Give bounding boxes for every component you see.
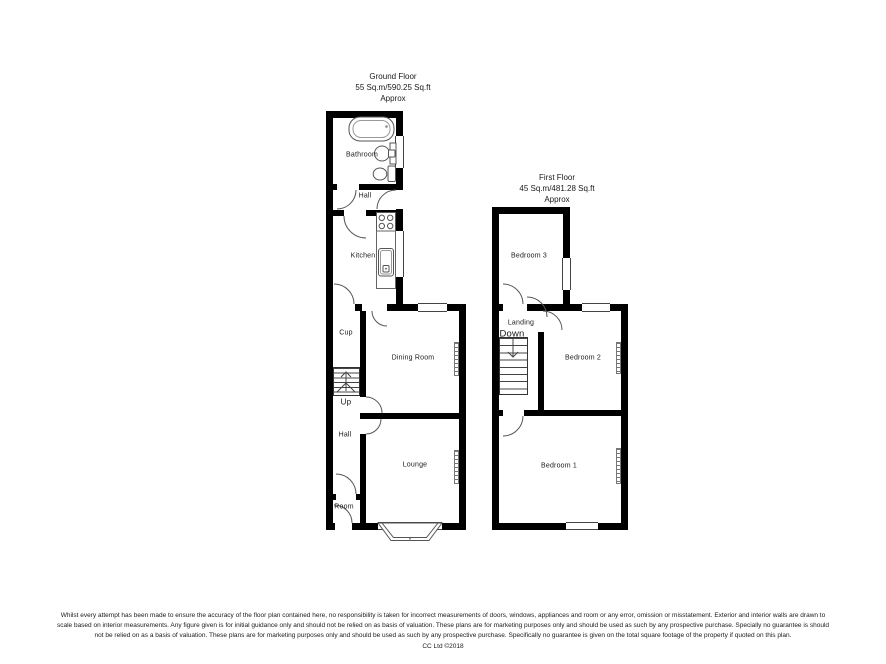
- wall-segment: [360, 311, 366, 397]
- door-arc-bedroom3: [503, 284, 523, 304]
- bathtub: [349, 117, 394, 141]
- wall-segment: [356, 494, 366, 500]
- wall-segment: [326, 523, 335, 530]
- radiator: [454, 342, 459, 376]
- wall-segment: [326, 111, 333, 530]
- wall-segment: [492, 304, 503, 311]
- wall-segment: [621, 304, 628, 530]
- door-arc-hall-lounge: [366, 419, 381, 434]
- wall-segment: [492, 410, 503, 416]
- wall-segment: [563, 207, 570, 258]
- disclaimer-line-2: scale based on interior measurements. An…: [0, 621, 886, 631]
- wall-segment: [359, 184, 403, 190]
- ground-floor-approx: Approx: [293, 93, 493, 104]
- window: [562, 258, 571, 290]
- wall-segment: [326, 494, 336, 500]
- staircase-first: [499, 337, 528, 395]
- stairs-label-up: Up: [341, 398, 352, 407]
- door-arc-bathroom: [337, 190, 356, 209]
- radiator: [616, 448, 621, 484]
- room-label-room: Room: [334, 504, 353, 511]
- toilet-cistern: [388, 166, 396, 182]
- door-arc-dining: [372, 311, 387, 326]
- wall-segment: [387, 304, 418, 311]
- disclaimer-line-1: Whilst every attempt has been made to en…: [0, 611, 886, 621]
- room-label-bedroom1: Bedroom 1: [541, 463, 577, 470]
- radiator: [454, 450, 459, 484]
- burner-icon: [379, 223, 384, 228]
- drain-icon: [385, 268, 387, 270]
- door-arc-bedroom1: [503, 416, 523, 436]
- room-label-hall-lower: Hall: [339, 432, 352, 439]
- ground-floor-title-block: Ground Floor 55 Sq.m/590.25 Sq.ft Approx: [293, 71, 493, 104]
- wall-segment: [360, 434, 366, 530]
- wall-segment: [492, 207, 499, 530]
- kitchen-counter: [377, 231, 396, 289]
- kitchen-sink-inner: [381, 251, 392, 275]
- floor-plan-page: Ground Floor 55 Sq.m/590.25 Sq.ft Approx…: [0, 0, 886, 664]
- bay-window-sill: [378, 522, 442, 530]
- bathtub-inner: [353, 121, 390, 138]
- wall-segment: [366, 210, 403, 216]
- wall-segment: [492, 207, 570, 214]
- first-floor-approx: Approx: [457, 194, 657, 205]
- kitchen-sink-basin: [383, 266, 389, 273]
- wall-segment: [538, 332, 544, 416]
- wall-segment: [492, 523, 566, 530]
- stairs-label-down: Down: [499, 329, 524, 340]
- toilet: [373, 168, 387, 180]
- room-label-hall-upper: Hall: [359, 193, 372, 200]
- wall-segment: [333, 210, 344, 216]
- burner-icon: [388, 223, 393, 228]
- disclaimer: Whilst every attempt has been made to en…: [0, 611, 886, 652]
- window: [418, 303, 447, 312]
- room-label-cup: Cup: [339, 330, 352, 337]
- wall-segment: [355, 304, 362, 311]
- first-floor-title: First Floor: [457, 172, 657, 183]
- wall-segment: [527, 304, 582, 311]
- staircase-ground: [333, 367, 360, 396]
- disclaimer-line-3: not be relied on as a basis of valuation…: [0, 631, 886, 641]
- door-arc-kitchen: [344, 216, 366, 238]
- kitchen-sink: [379, 249, 394, 277]
- door-arc-bedroom2: [543, 311, 562, 330]
- wall-segment: [598, 523, 628, 530]
- room-label-bedroom3: Bedroom 3: [511, 253, 547, 260]
- bath-tap-icon: [385, 125, 388, 128]
- first-floor-area: 45 Sq.m/481.28 Sq.ft: [457, 183, 657, 194]
- window: [395, 136, 404, 168]
- radiator: [616, 342, 621, 374]
- room-label-bathroom: Bathroom: [346, 152, 378, 159]
- door-arc-hall-dining: [366, 397, 382, 413]
- door-arc-room: [336, 474, 356, 494]
- window: [566, 522, 598, 530]
- room-label-kitchen: Kitchen: [351, 253, 376, 260]
- ground-floor-title: Ground Floor: [293, 71, 493, 82]
- wall-segment: [360, 413, 466, 419]
- wall-segment: [333, 184, 337, 190]
- room-label-dining-room: Dining Room: [392, 355, 435, 362]
- room-label-landing: Landing: [508, 320, 534, 327]
- door-arc-hall-side: [377, 190, 396, 209]
- window: [395, 231, 404, 277]
- room-label-bedroom2: Bedroom 2: [565, 355, 601, 362]
- wall-segment: [442, 523, 466, 530]
- bay-window-mark: [409, 538, 411, 540]
- room-label-lounge: Lounge: [403, 462, 428, 469]
- copyright: CC Ltd ©2018: [0, 642, 886, 652]
- wall-segment: [326, 111, 403, 118]
- window: [582, 303, 610, 312]
- first-floor-title-block: First Floor 45 Sq.m/481.28 Sq.ft Approx: [457, 172, 657, 205]
- door-arc-cup: [334, 284, 354, 304]
- stair-treads: [500, 338, 527, 394]
- ground-floor-area: 55 Sq.m/590.25 Sq.ft: [293, 82, 493, 93]
- wall-segment: [524, 410, 628, 416]
- stair-treads: [334, 368, 359, 395]
- wall-segment: [396, 111, 403, 136]
